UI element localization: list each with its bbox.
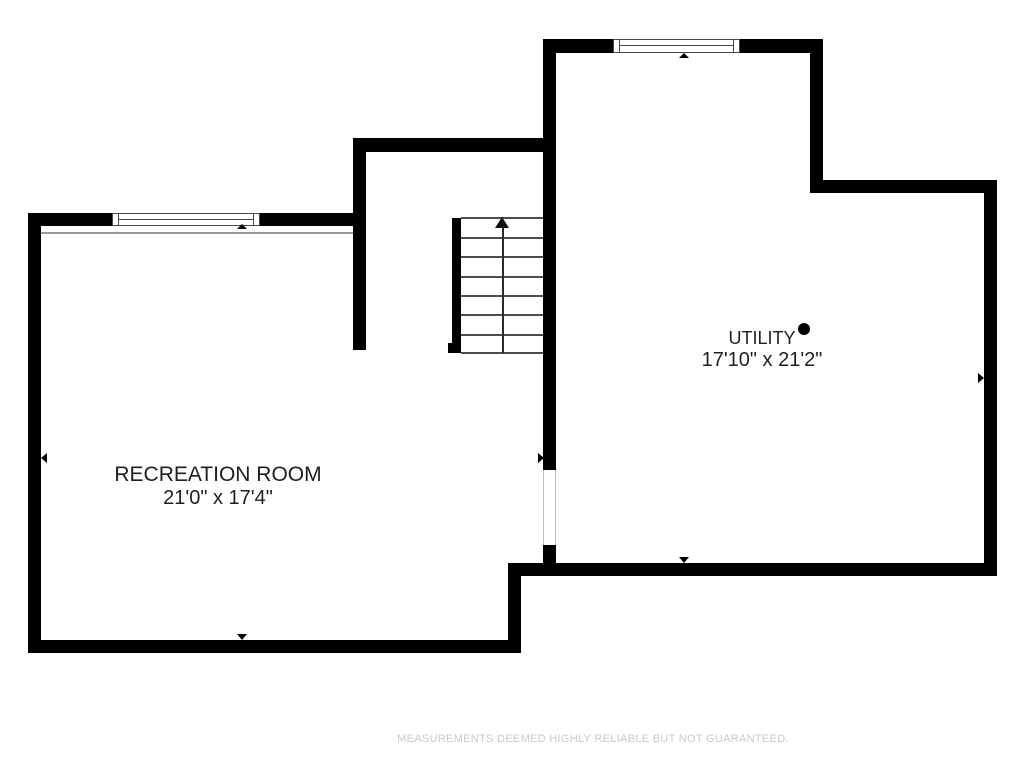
stairs-up-arrow-stem [502,228,504,353]
wall-rec-bottom [28,640,521,653]
disclaimer-text: MEASUREMENTS DEEMED HIGHLY RELIABLE BUT … [397,733,789,745]
room-dimensions-recreation: 21'0" x 17'4" [163,488,273,508]
stairs-up-arrow-icon [495,217,509,228]
wall-stairs-left-foot [448,343,461,353]
room-label-utility: UTILITY [728,329,795,347]
wall-divider-stub [543,545,556,563]
room-label-recreation: RECREATION ROOM [114,464,321,485]
window-pane-line [119,219,253,220]
door-opening-edge [543,470,544,545]
room-dimensions-utility: 17'10" x 21'2" [702,350,823,370]
wall-stairwell-top [353,138,556,152]
marker-rec-window-icon [237,224,247,229]
wall-utility-bottom [508,563,997,576]
wall-utility-step [810,180,997,193]
ceiling-edge-line [41,232,353,234]
door-opening-edge [555,470,556,545]
marker-utility-bottom-icon [679,557,689,563]
window-endcap-icon [253,214,254,225]
wall-stairwell-left-upper [353,138,366,350]
wall-rec-left [28,213,41,653]
marker-utility-window-icon [679,53,689,58]
wall-rec-top-right-segment [260,213,366,226]
wall-stairs-left [452,218,461,353]
marker-rec-bottom-icon [237,634,247,640]
window-endcap-icon [733,40,734,52]
wall-utility-top-left-segment [543,39,613,53]
window-utility [613,39,740,53]
wall-utility-right-lower [984,180,997,576]
wall-divider-upper [543,39,556,470]
marker-rec-left-wall-icon [41,453,47,463]
wall-step-vertical [508,563,521,653]
camera-point-icon [798,323,810,335]
window-endcap-icon [619,40,620,52]
window-pane-line [620,45,733,46]
wall-utility-right-upper [810,39,823,193]
window-endcap-icon [118,214,119,225]
marker-utility-right-icon [978,373,984,383]
marker-divider-wall-icon [538,453,544,463]
floor-plan: RECREATION ROOM 21'0" x 17'4" UTILITY 17… [0,0,1024,768]
